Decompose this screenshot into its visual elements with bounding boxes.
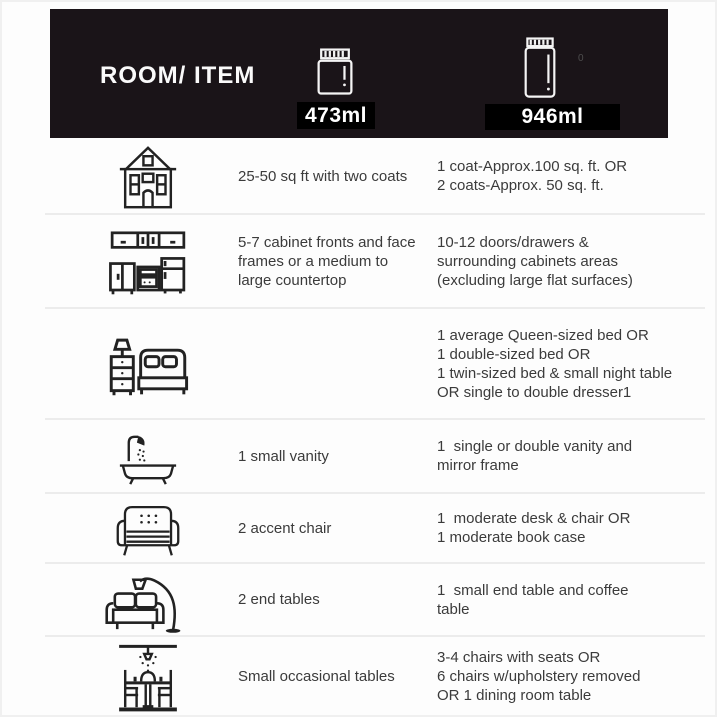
large-can-coverage: 1 small end table and coffee table xyxy=(437,564,707,635)
coverage-line: 3-4 chairs with seats OR xyxy=(437,648,707,667)
table-row: 5-7 cabinet fronts and face frames or a … xyxy=(0,215,717,307)
large-can-coverage: 3-4 chairs with seats OR 6 chairs w/upho… xyxy=(437,637,707,715)
item-line: 2 accent chair xyxy=(238,519,433,538)
coverage-line: (excluding large flat surfaces) xyxy=(437,271,707,290)
item-line: frames or a medium to xyxy=(238,252,433,271)
large-can-coverage: 1 average Queen-sized bed OR 1 double-si… xyxy=(437,309,707,418)
large-can-coverage: 1 moderate desk & chair OR 1 moderate bo… xyxy=(437,494,707,562)
coverage-line: 10-12 doors/drawers & xyxy=(437,233,707,252)
bathtub-shower-icon xyxy=(98,420,198,492)
item-line: large countertop xyxy=(238,271,433,290)
coverage-line: table xyxy=(437,600,707,619)
size-label-473ml: 473ml xyxy=(305,104,367,128)
paint-can-large-icon xyxy=(522,36,558,105)
coverage-line: 6 chairs w/upholstery removed xyxy=(437,667,707,686)
item-description: 1 small vanity xyxy=(238,420,433,492)
sofa-floor-lamp-icon xyxy=(98,564,198,635)
large-can-coverage: 1 coat-Approx.100 sq. ft. OR 2 coats-App… xyxy=(437,139,707,213)
item-description xyxy=(238,309,433,418)
coverage-line: 1 double-sized bed OR xyxy=(437,345,707,364)
coverage-line: 1 moderate desk & chair OR xyxy=(437,509,707,528)
bedroom-icon xyxy=(98,309,198,418)
table-row: 1 small vanity 1 single or double vanity… xyxy=(0,420,717,492)
coverage-line: 1 twin-sized bed & small night table xyxy=(437,364,707,383)
large-can-coverage: 10-12 doors/drawers & surrounding cabine… xyxy=(437,215,707,307)
item-line: 5-7 cabinet fronts and face xyxy=(238,233,433,252)
large-can-coverage: 1 single or double vanity and mirror fra… xyxy=(437,420,707,492)
watermark-mark: 0 xyxy=(578,53,584,64)
item-description: 2 accent chair xyxy=(238,494,433,562)
item-line: 2 end tables xyxy=(238,590,433,609)
kitchen-cabinets-icon xyxy=(98,215,198,307)
coverage-line: 1 average Queen-sized bed OR xyxy=(437,326,707,345)
coverage-line: mirror frame xyxy=(437,456,707,475)
table-row: 1 average Queen-sized bed OR 1 double-si… xyxy=(0,309,717,418)
coverage-line: OR single to double dresser1 xyxy=(437,383,707,402)
coverage-line: 1 moderate book case xyxy=(437,528,707,547)
item-description: 25-50 sq ft with two coats xyxy=(238,139,433,213)
paint-coverage-comparison-table: ROOM/ ITEM 473ml xyxy=(0,0,717,717)
coverage-line: 1 single or double vanity and xyxy=(437,437,707,456)
item-line: 1 small vanity xyxy=(238,447,433,466)
item-line: 25-50 sq ft with two coats xyxy=(238,167,433,186)
coverage-line: OR 1 dining room table xyxy=(437,686,707,705)
item-description: 5-7 cabinet fronts and face frames or a … xyxy=(238,215,433,307)
accent-chair-icon xyxy=(98,494,198,562)
item-description: 2 end tables xyxy=(238,564,433,635)
table-row: 2 accent chair 1 moderate desk & chair O… xyxy=(0,494,717,562)
coverage-line: 1 small end table and coffee xyxy=(437,581,707,600)
table-row: 25-50 sq ft with two coats 1 coat-Approx… xyxy=(0,139,717,213)
dining-table-icon xyxy=(98,637,198,715)
table-row: 2 end tables 1 small end table and coffe… xyxy=(0,564,717,635)
size-badge-473ml: 473ml xyxy=(297,102,375,129)
paint-can-small-icon xyxy=(316,47,354,102)
coverage-line: 1 coat-Approx.100 sq. ft. OR xyxy=(437,157,707,176)
coverage-line: surrounding cabinets areas xyxy=(437,252,707,271)
room-item-column-header: ROOM/ ITEM xyxy=(100,62,255,90)
item-line: Small occasional tables xyxy=(238,667,433,686)
coverage-line: 2 coats-Approx. 50 sq. ft. xyxy=(437,176,707,195)
item-description: Small occasional tables xyxy=(238,637,433,715)
table-row: Small occasional tables 3-4 chairs with … xyxy=(0,637,717,715)
size-badge-946ml: 946ml xyxy=(485,104,620,130)
size-label-946ml: 946ml xyxy=(521,105,583,129)
table-header: ROOM/ ITEM 473ml xyxy=(50,9,668,138)
house-icon xyxy=(98,139,198,213)
